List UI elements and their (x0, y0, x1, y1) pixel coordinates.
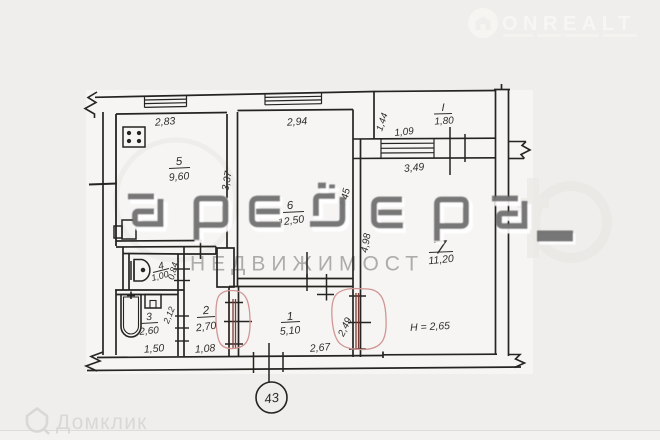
svg-text:2,60: 2,60 (138, 325, 160, 338)
svg-text:H = 2,65: H = 2,65 (410, 320, 451, 334)
svg-text:5,10: 5,10 (279, 324, 301, 338)
svg-text:1,80: 1,80 (434, 115, 455, 127)
svg-text:1,50: 1,50 (143, 342, 164, 355)
svg-text:1,09: 1,09 (394, 126, 415, 139)
svg-text:I: I (441, 102, 444, 114)
svg-text:3,49: 3,49 (403, 161, 425, 175)
svg-text:2,94: 2,94 (285, 115, 307, 128)
svg-text:43: 43 (263, 389, 280, 406)
svg-text:2,83: 2,83 (153, 115, 175, 128)
svg-text:9,60: 9,60 (168, 170, 190, 184)
svg-text:ONREALT: ONREALT (502, 13, 636, 35)
svg-text:3: 3 (146, 311, 153, 323)
svg-text:2,67: 2,67 (308, 341, 332, 355)
svg-text:1,08: 1,08 (194, 342, 215, 355)
svg-text:Домклик: Домклик (56, 411, 148, 434)
